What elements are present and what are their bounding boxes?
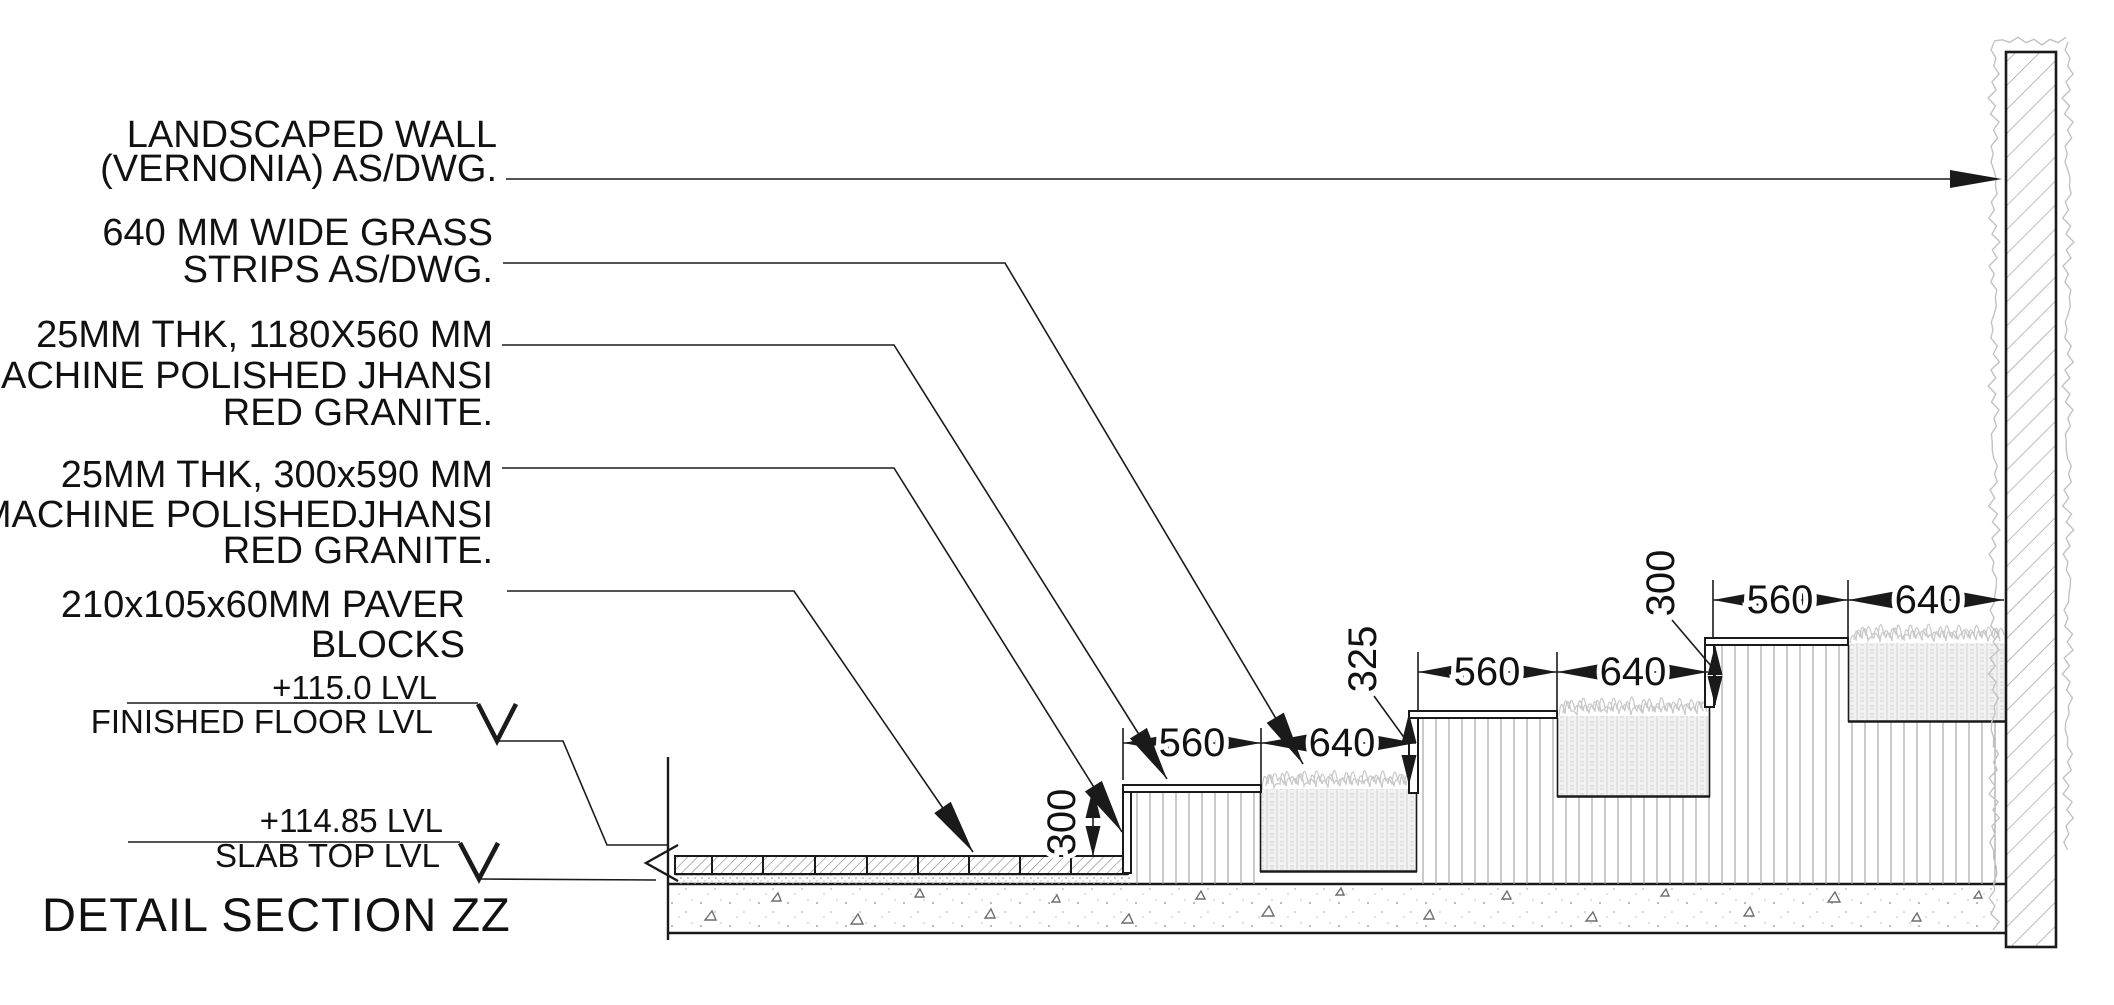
dim-tier1-riser: 300	[1040, 789, 1084, 856]
tread-slab-2	[1409, 711, 1557, 718]
callout-grass-strips-line2: STRIPS AS/DWG.	[183, 249, 493, 291]
drawing-svg: 560 640 300 560 640 325 560 640	[0, 0, 2114, 1005]
paver-strip	[675, 856, 1131, 884]
riser-slab-1	[1123, 792, 1131, 873]
callout-granite-riser-line1: 25MM THK, 300x590 MM	[61, 454, 493, 496]
slab-top-value: +114.85 LVL	[260, 802, 443, 839]
dim-tier3-riser: 300	[1639, 550, 1683, 617]
callout-paver-blocks-line2: BLOCKS	[311, 624, 465, 666]
callout-granite-tread-line1: 25MM THK, 1180X560 MM	[36, 314, 493, 356]
callout-granite-tread-line3: RED GRANITE.	[223, 392, 493, 434]
callout-paver-blocks-line1: 210x105x60MM PAVER	[61, 584, 465, 626]
tread-slab-1	[1123, 785, 1261, 792]
finished-floor-value: +115.0 LVL	[272, 669, 437, 706]
dim-tier3-grass: 640	[1895, 578, 1962, 622]
finished-floor-label: FINISHED FLOOR LVL	[91, 703, 433, 740]
dim-tier2-riser: 325	[1341, 626, 1385, 693]
callout-grass-strips-line1: 640 MM WIDE GRASS	[102, 212, 493, 254]
detail-section-drawing: 560 640 300 560 640 325 560 640	[0, 0, 2114, 1005]
tread-slab-3	[1705, 638, 1848, 645]
dim-tier1-tread: 560	[1159, 721, 1226, 765]
dim-tier3-tread: 560	[1747, 578, 1814, 622]
dim-tier2-tread: 560	[1454, 650, 1521, 694]
dim-tier2-grass: 640	[1600, 650, 1667, 694]
sand-bedding	[675, 875, 1131, 884]
callout-landscaped-wall-line2: (VERNONIA) AS/DWG.	[100, 148, 497, 190]
drawing-title: DETAIL SECTION ZZ	[42, 888, 511, 941]
dim-tier1-grass: 640	[1309, 721, 1376, 765]
slab-top-leader	[479, 879, 656, 880]
callout-granite-riser-line3: RED GRANITE.	[223, 530, 493, 572]
callout-granite-tread-line2: MACHINE POLISHED JHANSI	[0, 355, 493, 397]
slab-top-label: SLAB TOP LVL	[215, 837, 440, 874]
